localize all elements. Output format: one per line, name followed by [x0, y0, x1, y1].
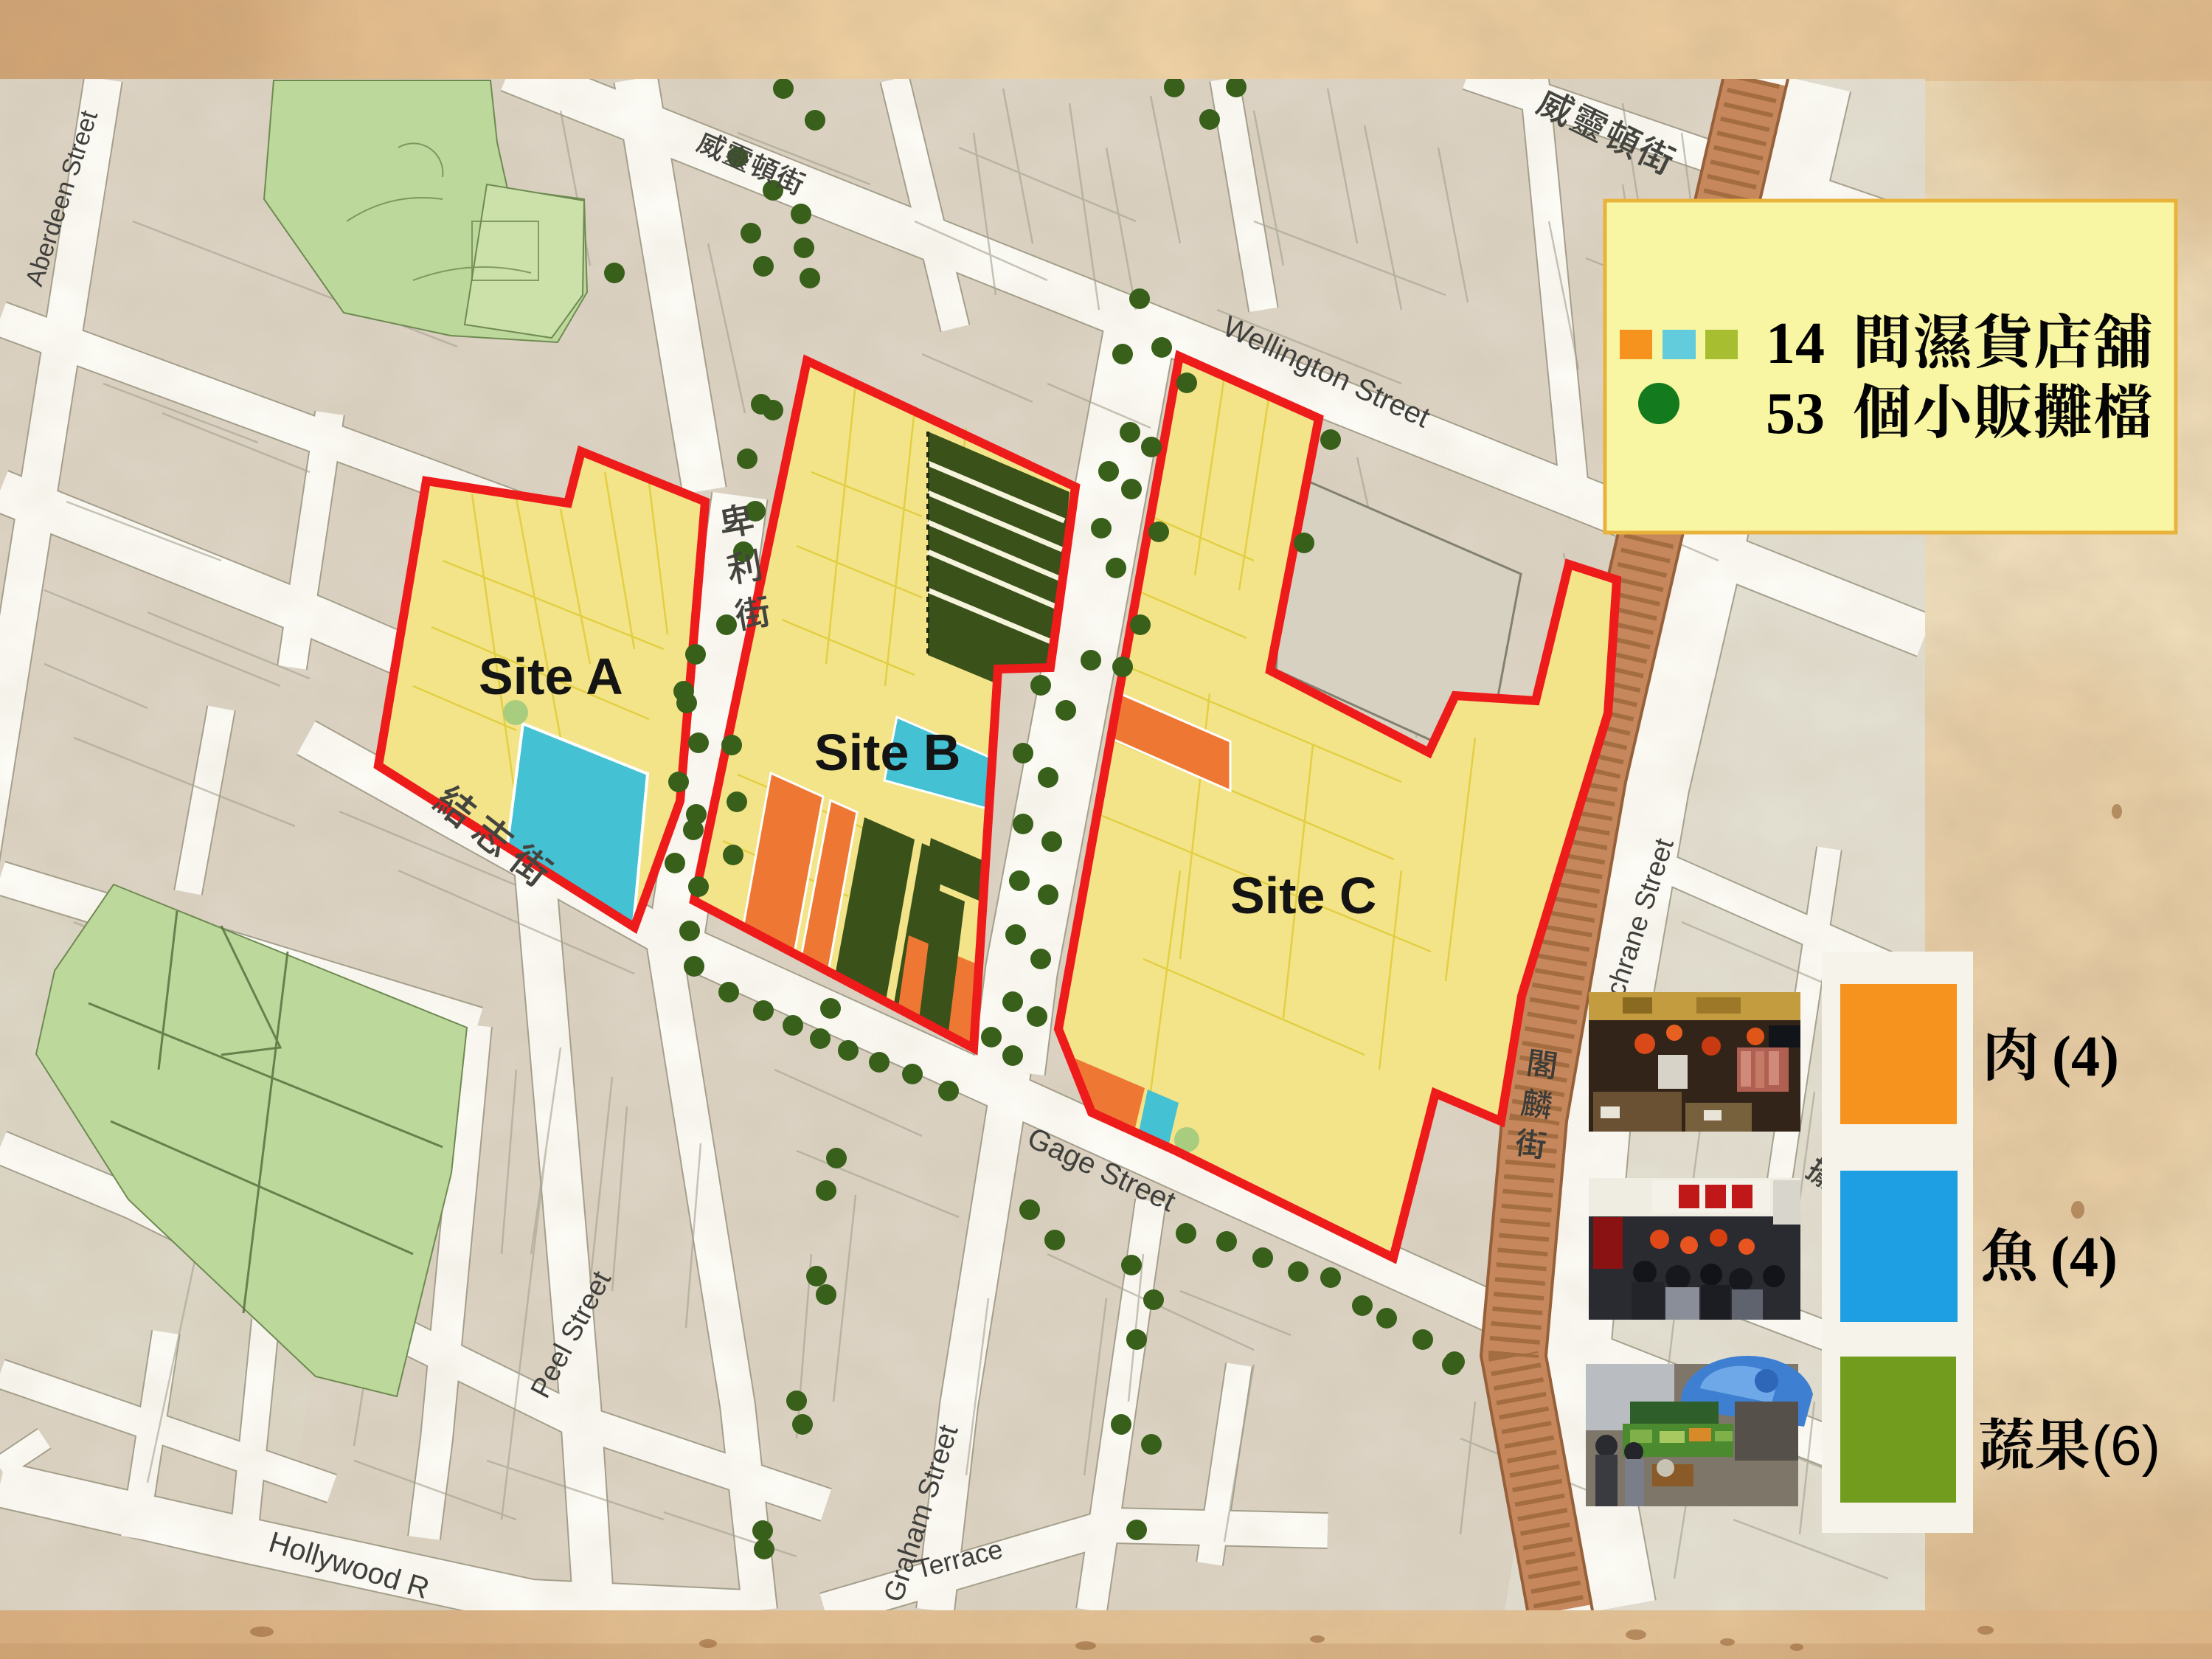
svg-text:(4): (4) — [2050, 1225, 2118, 1289]
svg-text:14: 14 — [1766, 311, 1825, 376]
svg-text:Site B: Site B — [814, 724, 960, 781]
svg-text:(4): (4) — [2052, 1024, 2119, 1088]
svg-text:53: 53 — [1766, 381, 1825, 446]
svg-text:Site A: Site A — [479, 648, 623, 705]
svg-text:(6): (6) — [2092, 1415, 2160, 1478]
svg-text:Site C: Site C — [1230, 867, 1376, 924]
